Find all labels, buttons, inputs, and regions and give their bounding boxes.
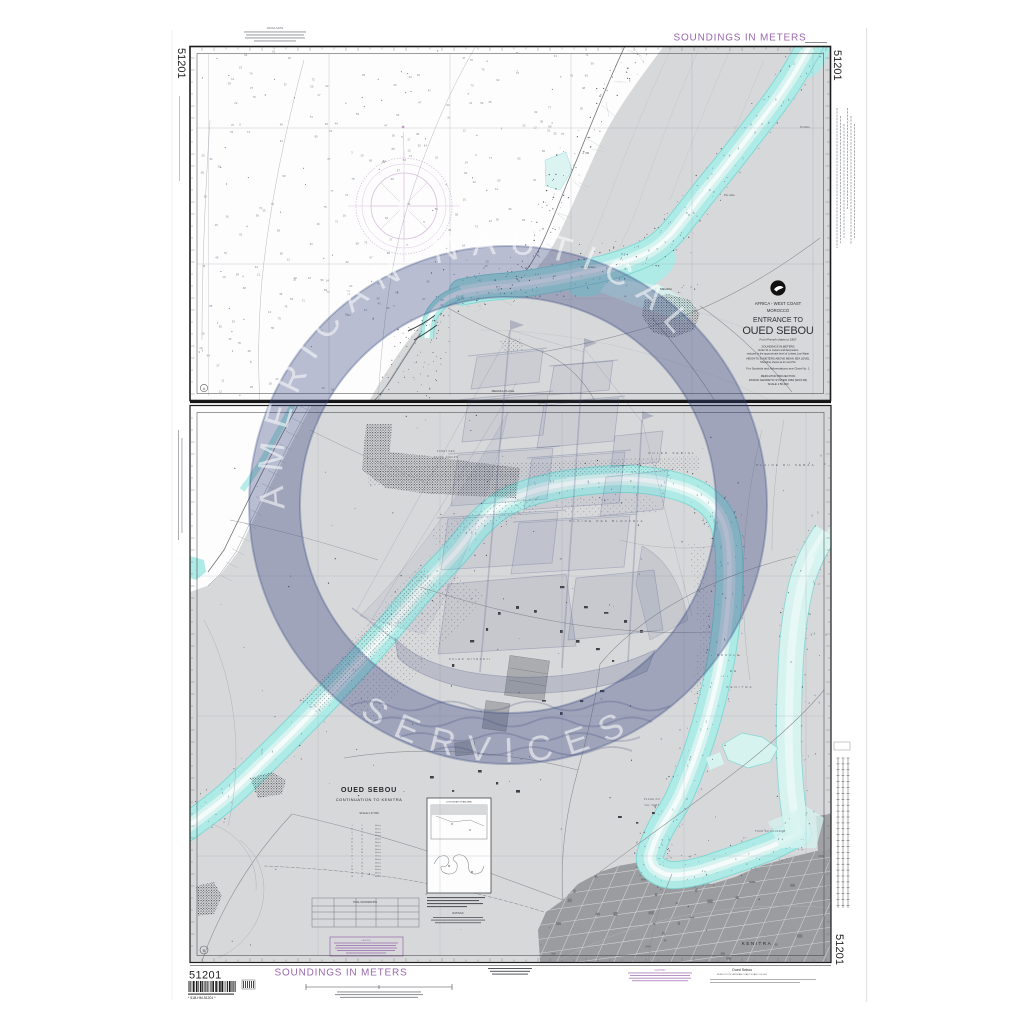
svg-text:✶: ✶ xyxy=(401,124,406,131)
svg-text:12: 12 xyxy=(407,149,411,153)
svg-text:74: 74 xyxy=(271,202,275,206)
svg-text:47: 47 xyxy=(384,124,388,128)
svg-text:36: 36 xyxy=(256,213,260,217)
svg-text:76: 76 xyxy=(249,72,253,76)
svg-text:17: 17 xyxy=(317,93,321,97)
svg-text:73: 73 xyxy=(364,241,368,245)
svg-text:35: 35 xyxy=(262,209,266,213)
svg-text:70: 70 xyxy=(224,251,228,255)
svg-text:20: 20 xyxy=(202,153,206,157)
svg-text:Meters: Meters xyxy=(375,824,381,827)
svg-text:44: 44 xyxy=(335,122,339,126)
svg-text:Under 31 in meters and decimet: Under 31 in meters and decimeters xyxy=(758,348,799,352)
svg-text:✶: ✶ xyxy=(660,737,663,741)
svg-text:DE: DE xyxy=(730,669,738,673)
svg-text:32: 32 xyxy=(534,110,538,114)
svg-text:51201: 51201 xyxy=(189,970,222,982)
svg-text:Shoreline shown at 2m and 5m: Shoreline shown at 2m and 5m xyxy=(760,360,796,364)
svg-text:50: 50 xyxy=(219,325,223,329)
svg-text:32: 32 xyxy=(522,123,526,127)
svg-text:31: 31 xyxy=(409,75,413,79)
svg-text:15: 15 xyxy=(215,223,219,227)
svg-text:51201: 51201 xyxy=(831,50,843,81)
svg-text:SOUNDINGS IN METERS: SOUNDINGS IN METERS xyxy=(275,968,408,979)
svg-text:HEIGHTS IN METERS ABOVE MEAN S: HEIGHTS IN METERS ABOVE MEAN SEA LEVEL xyxy=(746,357,810,361)
svg-text:* 51B-HM-51201 *: * 51B-HM-51201 * xyxy=(188,996,216,1000)
svg-text:37: 37 xyxy=(250,86,254,90)
svg-text:51201: 51201 xyxy=(175,48,187,79)
svg-text:63: 63 xyxy=(407,202,411,206)
svg-text:37: 37 xyxy=(409,154,413,158)
svg-text:63: 63 xyxy=(497,179,501,183)
svg-text:53: 53 xyxy=(290,297,294,301)
svg-text:16: 16 xyxy=(317,222,321,226)
svg-text:62: 62 xyxy=(346,260,350,264)
svg-text:12: 12 xyxy=(257,272,261,276)
svg-text:61: 61 xyxy=(272,50,276,54)
svg-text:Meters: Meters xyxy=(375,831,381,834)
svg-text:Meters: Meters xyxy=(375,827,381,830)
svg-text:46: 46 xyxy=(280,122,284,126)
svg-text:48: 48 xyxy=(582,86,586,90)
svg-text:10: 10 xyxy=(222,275,226,279)
svg-text:25: 25 xyxy=(554,131,558,135)
svg-text:17: 17 xyxy=(407,138,411,142)
svg-text:From French charts to 1967: From French charts to 1967 xyxy=(759,338,796,342)
svg-text:77: 77 xyxy=(330,189,334,193)
svg-text:14: 14 xyxy=(465,161,469,165)
svg-text:reduced to the approximate lev: reduced to the approximate level of Lowe… xyxy=(747,352,810,356)
svg-text:67: 67 xyxy=(369,256,373,260)
svg-text:38: 38 xyxy=(356,242,360,246)
svg-text:Meters: Meters xyxy=(375,872,381,875)
svg-text:21: 21 xyxy=(469,101,473,105)
svg-text:44: 44 xyxy=(473,180,477,184)
svg-text:62: 62 xyxy=(464,171,468,175)
svg-text:62: 62 xyxy=(496,78,500,82)
svg-text:23: 23 xyxy=(239,65,243,69)
svg-text:10: 10 xyxy=(463,197,467,201)
svg-text:64: 64 xyxy=(424,143,428,147)
svg-text:64: 64 xyxy=(244,53,248,57)
svg-text:70: 70 xyxy=(253,95,257,99)
svg-text:MOROCCO: MOROCCO xyxy=(767,308,790,313)
svg-text:SCALE 1:17,500: SCALE 1:17,500 xyxy=(359,811,379,815)
svg-text:TIDAL INFORMATION: TIDAL INFORMATION xyxy=(353,901,377,904)
svg-text:55: 55 xyxy=(517,157,521,161)
svg-text:65: 65 xyxy=(369,159,373,163)
svg-text:31: 31 xyxy=(547,129,551,133)
svg-text:OULED MITRADJI: OULED MITRADJI xyxy=(449,657,492,661)
svg-text:VAL VERT: VAL VERT xyxy=(644,804,659,807)
svg-text:55: 55 xyxy=(209,304,213,308)
svg-text:63: 63 xyxy=(522,218,526,222)
svg-text:58: 58 xyxy=(204,194,208,198)
svg-text:46: 46 xyxy=(279,292,283,296)
svg-text:76: 76 xyxy=(470,58,474,62)
svg-text:Oued Sebou: Oued Sebou xyxy=(732,968,752,972)
svg-text:MOROCCO W. AFRICAN COAST SC: MOROCCO W. AFRICAN COAST SCALE 1:50,000 xyxy=(717,973,768,976)
svg-text:51: 51 xyxy=(210,157,214,161)
svg-text:27: 27 xyxy=(217,364,221,368)
svg-text:47: 47 xyxy=(418,100,422,104)
svg-text:45: 45 xyxy=(362,73,366,77)
svg-text:59: 59 xyxy=(480,101,484,105)
svg-text:78: 78 xyxy=(284,305,288,309)
svg-text:65: 65 xyxy=(392,147,396,151)
svg-text:43: 43 xyxy=(215,255,219,259)
svg-text:15: 15 xyxy=(393,83,397,87)
svg-text:19: 19 xyxy=(199,346,203,350)
svg-text:Dr Idriss: Dr Idriss xyxy=(800,125,810,129)
svg-text:64: 64 xyxy=(396,113,400,117)
svg-text:39: 39 xyxy=(591,61,595,65)
svg-text:CAUTION: CAUTION xyxy=(655,969,666,972)
svg-text:61: 61 xyxy=(239,233,243,237)
svg-text:Meters: Meters xyxy=(375,841,381,844)
svg-text:63: 63 xyxy=(446,103,450,107)
svg-text:35: 35 xyxy=(488,100,492,104)
svg-text:51: 51 xyxy=(448,115,452,119)
svg-text:61: 61 xyxy=(329,129,333,133)
svg-text:36: 36 xyxy=(250,385,254,389)
svg-text:19: 19 xyxy=(417,73,421,77)
svg-text:61: 61 xyxy=(280,139,284,143)
svg-text:RATINGS: RATINGS xyxy=(452,911,464,915)
svg-text:52: 52 xyxy=(418,143,422,147)
svg-text:78: 78 xyxy=(238,341,242,345)
svg-text:ENTRANCE TO: ENTRANCE TO xyxy=(753,317,803,324)
svg-text:71: 71 xyxy=(302,299,306,303)
svg-text:54: 54 xyxy=(403,158,407,162)
svg-text:57: 57 xyxy=(284,83,288,87)
svg-text:48: 48 xyxy=(243,286,247,290)
svg-text:Meters: Meters xyxy=(375,858,381,861)
svg-text:52: 52 xyxy=(509,207,513,211)
svg-text:16: 16 xyxy=(308,276,312,280)
svg-text:61: 61 xyxy=(385,216,389,220)
svg-text:26: 26 xyxy=(392,134,396,138)
svg-text:Meters: Meters xyxy=(375,851,381,854)
svg-text:SCALE 1:50,000: SCALE 1:50,000 xyxy=(768,382,789,386)
svg-text:10: 10 xyxy=(343,214,347,218)
svg-text:KENITRA: KENITRA xyxy=(726,685,753,689)
svg-text:77: 77 xyxy=(489,156,493,160)
svg-text:37: 37 xyxy=(389,237,393,241)
svg-text:75: 75 xyxy=(561,132,565,136)
svg-text:59: 59 xyxy=(324,288,328,292)
svg-text:55: 55 xyxy=(435,207,439,211)
svg-text:65: 65 xyxy=(585,74,589,78)
svg-text:47: 47 xyxy=(428,89,432,93)
svg-text:66: 66 xyxy=(542,149,546,153)
svg-text:71: 71 xyxy=(335,219,339,223)
svg-text:OUED SEBOU: OUED SEBOU xyxy=(742,325,814,337)
svg-text:30: 30 xyxy=(496,217,500,221)
svg-text:Pte. Attia: Pte. Attia xyxy=(724,193,735,197)
svg-text:74: 74 xyxy=(247,130,251,134)
svg-text:12: 12 xyxy=(534,126,538,130)
svg-text:13: 13 xyxy=(268,310,272,314)
svg-text:SOUNDINGS IN METERS: SOUNDINGS IN METERS xyxy=(762,345,795,349)
svg-text:OUED SEBOU: OUED SEBOU xyxy=(341,785,397,794)
svg-text:10: 10 xyxy=(435,156,439,160)
svg-text:38: 38 xyxy=(277,229,281,233)
svg-text:59: 59 xyxy=(282,174,286,178)
svg-text:57: 57 xyxy=(397,169,401,173)
svg-text:51201: 51201 xyxy=(833,934,845,965)
svg-text:57: 57 xyxy=(310,115,314,119)
svg-text:16: 16 xyxy=(225,215,229,219)
svg-text:CAUTION: CAUTION xyxy=(361,939,371,942)
svg-text:59: 59 xyxy=(320,278,324,282)
svg-text:SOUNDINGS IN METERS: SOUNDINGS IN METERS xyxy=(674,33,807,44)
svg-text:Meters: Meters xyxy=(375,848,381,851)
svg-text:B: B xyxy=(203,948,206,953)
svg-text:14: 14 xyxy=(326,279,330,283)
svg-text:CONTINUATION TO KENITRA: CONTINUATION TO KENITRA xyxy=(336,797,403,802)
svg-text:15: 15 xyxy=(228,337,232,341)
svg-text:12: 12 xyxy=(287,257,291,261)
svg-text:PLAGE DU: PLAGE DU xyxy=(644,798,660,801)
svg-text:Meters: Meters xyxy=(375,865,381,868)
svg-text:69: 69 xyxy=(315,135,319,139)
svg-text:39: 39 xyxy=(540,119,544,123)
svg-text:Meters: Meters xyxy=(375,861,381,864)
svg-text:51: 51 xyxy=(383,159,387,163)
svg-text:Meters: Meters xyxy=(375,834,381,837)
svg-text:39: 39 xyxy=(416,132,420,136)
svg-text:48: 48 xyxy=(248,349,252,353)
svg-text:56: 56 xyxy=(201,171,205,175)
svg-text:✶: ✶ xyxy=(300,757,303,761)
svg-text:11: 11 xyxy=(231,77,234,81)
svg-text:22: 22 xyxy=(234,101,238,105)
svg-text:16: 16 xyxy=(294,276,298,280)
svg-text:55: 55 xyxy=(310,85,314,89)
svg-text:For Symbols and Abbreviations: For Symbols and Abbreviations see Chart … xyxy=(746,367,810,371)
svg-text:Meters: Meters xyxy=(375,844,381,847)
svg-text:12: 12 xyxy=(463,129,467,133)
svg-text:FORET DES: FORET DES xyxy=(437,450,455,453)
svg-text:53: 53 xyxy=(232,319,236,323)
svg-text:39: 39 xyxy=(228,82,232,86)
svg-text:37: 37 xyxy=(462,56,466,60)
svg-text:55: 55 xyxy=(455,213,459,217)
svg-text:75: 75 xyxy=(324,205,328,209)
svg-text:14: 14 xyxy=(489,219,493,223)
svg-text:72: 72 xyxy=(312,77,316,81)
svg-text:32: 32 xyxy=(325,84,329,88)
svg-text:19: 19 xyxy=(360,154,364,158)
svg-text:65: 65 xyxy=(280,252,284,256)
svg-text:FAUSE ZAEURS: FAUSE ZAEURS xyxy=(434,456,458,459)
svg-text:Meters: Meters xyxy=(375,868,381,871)
svg-text:Meters: Meters xyxy=(375,875,381,878)
svg-text:36: 36 xyxy=(325,122,329,126)
svg-text:42: 42 xyxy=(570,74,574,78)
svg-text:54: 54 xyxy=(356,112,360,116)
svg-text:NAVSA NOTE: NAVSA NOTE xyxy=(267,26,284,30)
svg-text:61: 61 xyxy=(554,54,558,58)
svg-text:KENITRA: KENITRA xyxy=(742,941,772,946)
svg-text:11: 11 xyxy=(221,378,224,382)
svg-text:30: 30 xyxy=(580,107,584,111)
svg-text:72: 72 xyxy=(516,71,520,75)
svg-text:31: 31 xyxy=(310,242,314,246)
svg-text:16: 16 xyxy=(202,332,206,336)
svg-text:46: 46 xyxy=(391,177,395,181)
svg-text:59: 59 xyxy=(236,273,240,277)
svg-text:75: 75 xyxy=(278,316,282,320)
svg-text:Meters: Meters xyxy=(375,838,381,841)
svg-text:19: 19 xyxy=(288,56,292,60)
svg-text:77: 77 xyxy=(548,106,552,110)
svg-text:✶: ✶ xyxy=(700,787,703,791)
svg-text:AFRICA - WEST COAST: AFRICA - WEST COAST xyxy=(755,301,802,306)
svg-text:75: 75 xyxy=(481,68,485,72)
svg-text:✶: ✶ xyxy=(560,827,563,831)
svg-text:11: 11 xyxy=(495,187,498,191)
svg-text:12: 12 xyxy=(219,389,223,393)
svg-text:75: 75 xyxy=(351,177,355,181)
svg-text:72: 72 xyxy=(345,193,349,197)
svg-text:44: 44 xyxy=(255,265,259,269)
svg-text:CONTINUATION ABOARD: CONTINUATION ABOARD xyxy=(446,801,473,804)
svg-text:73: 73 xyxy=(470,83,474,87)
svg-text:47: 47 xyxy=(231,123,235,127)
svg-text:55: 55 xyxy=(271,326,275,330)
svg-text:TOUR DU FOUARAT: TOUR DU FOUARAT xyxy=(755,830,785,833)
svg-text:78: 78 xyxy=(230,130,234,134)
svg-text:72: 72 xyxy=(259,206,263,210)
svg-text:15: 15 xyxy=(202,264,206,268)
svg-text:10: 10 xyxy=(533,178,537,182)
